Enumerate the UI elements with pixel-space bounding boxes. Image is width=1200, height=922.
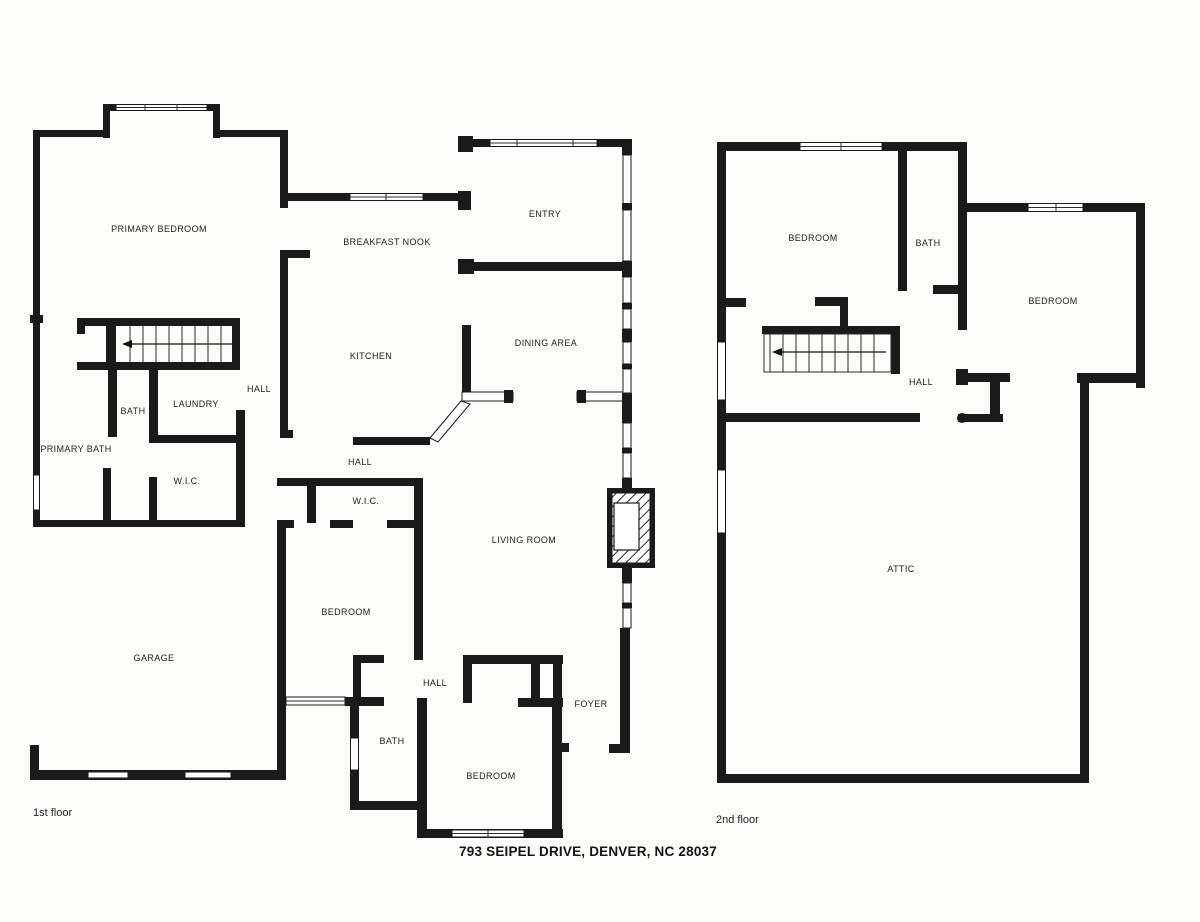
room-label-bedroom-right-2f: BEDROOM — [1028, 296, 1077, 306]
floorplan-sheet: PRIMARY BEDROOM BREAKFAST NOOK ENTRY KIT… — [0, 0, 1200, 922]
first-floor-caption: 1st floor — [33, 807, 72, 819]
room-label-kitchen: KITCHEN — [350, 351, 392, 361]
room-label-bedroom-left-2f: BEDROOM — [788, 233, 837, 243]
room-label-hall-2f: HALL — [909, 377, 933, 387]
room-label-hall-upper: HALL — [247, 384, 271, 394]
room-label-living-room: LIVING ROOM — [492, 535, 556, 545]
room-label-bath-2f: BATH — [916, 238, 941, 248]
room-label-breakfast-nook: BREAKFAST NOOK — [343, 237, 430, 247]
stairs-first-floor — [77, 318, 240, 370]
room-label-attic: ATTIC — [887, 564, 914, 574]
floor-plan-drawing — [0, 0, 1200, 922]
room-label-garage: GARAGE — [134, 653, 175, 663]
stairs-second-floor — [762, 326, 900, 374]
room-label-hall-mid: HALL — [348, 457, 372, 467]
room-label-bath-upper: BATH — [121, 406, 146, 416]
room-label-laundry: LAUNDRY — [173, 399, 219, 409]
room-label-primary-bath: PRIMARY BATH — [40, 444, 111, 454]
room-label-primary-bedroom: PRIMARY BEDROOM — [111, 224, 207, 234]
room-label-wic-primary: W.I.C. — [174, 476, 201, 486]
room-label-bedroom-mid: BEDROOM — [321, 607, 370, 617]
room-label-entry: ENTRY — [529, 209, 561, 219]
east-wall-windows — [609, 139, 632, 753]
room-label-bath-lower: BATH — [380, 736, 405, 746]
fireplace — [607, 488, 655, 568]
room-label-wic-mid: W.I.C. — [353, 496, 380, 506]
room-label-dining-area: DINING AREA — [515, 338, 577, 348]
first-floor-plan — [30, 104, 655, 838]
second-floor-caption: 2nd floor — [716, 814, 759, 826]
address-caption: 793 SEIPEL DRIVE, DENVER, NC 28037 — [459, 844, 717, 859]
room-label-foyer: FOYER — [574, 699, 607, 709]
room-label-bedroom-lower: BEDROOM — [466, 771, 515, 781]
room-label-hall-lower: HALL — [423, 678, 447, 688]
